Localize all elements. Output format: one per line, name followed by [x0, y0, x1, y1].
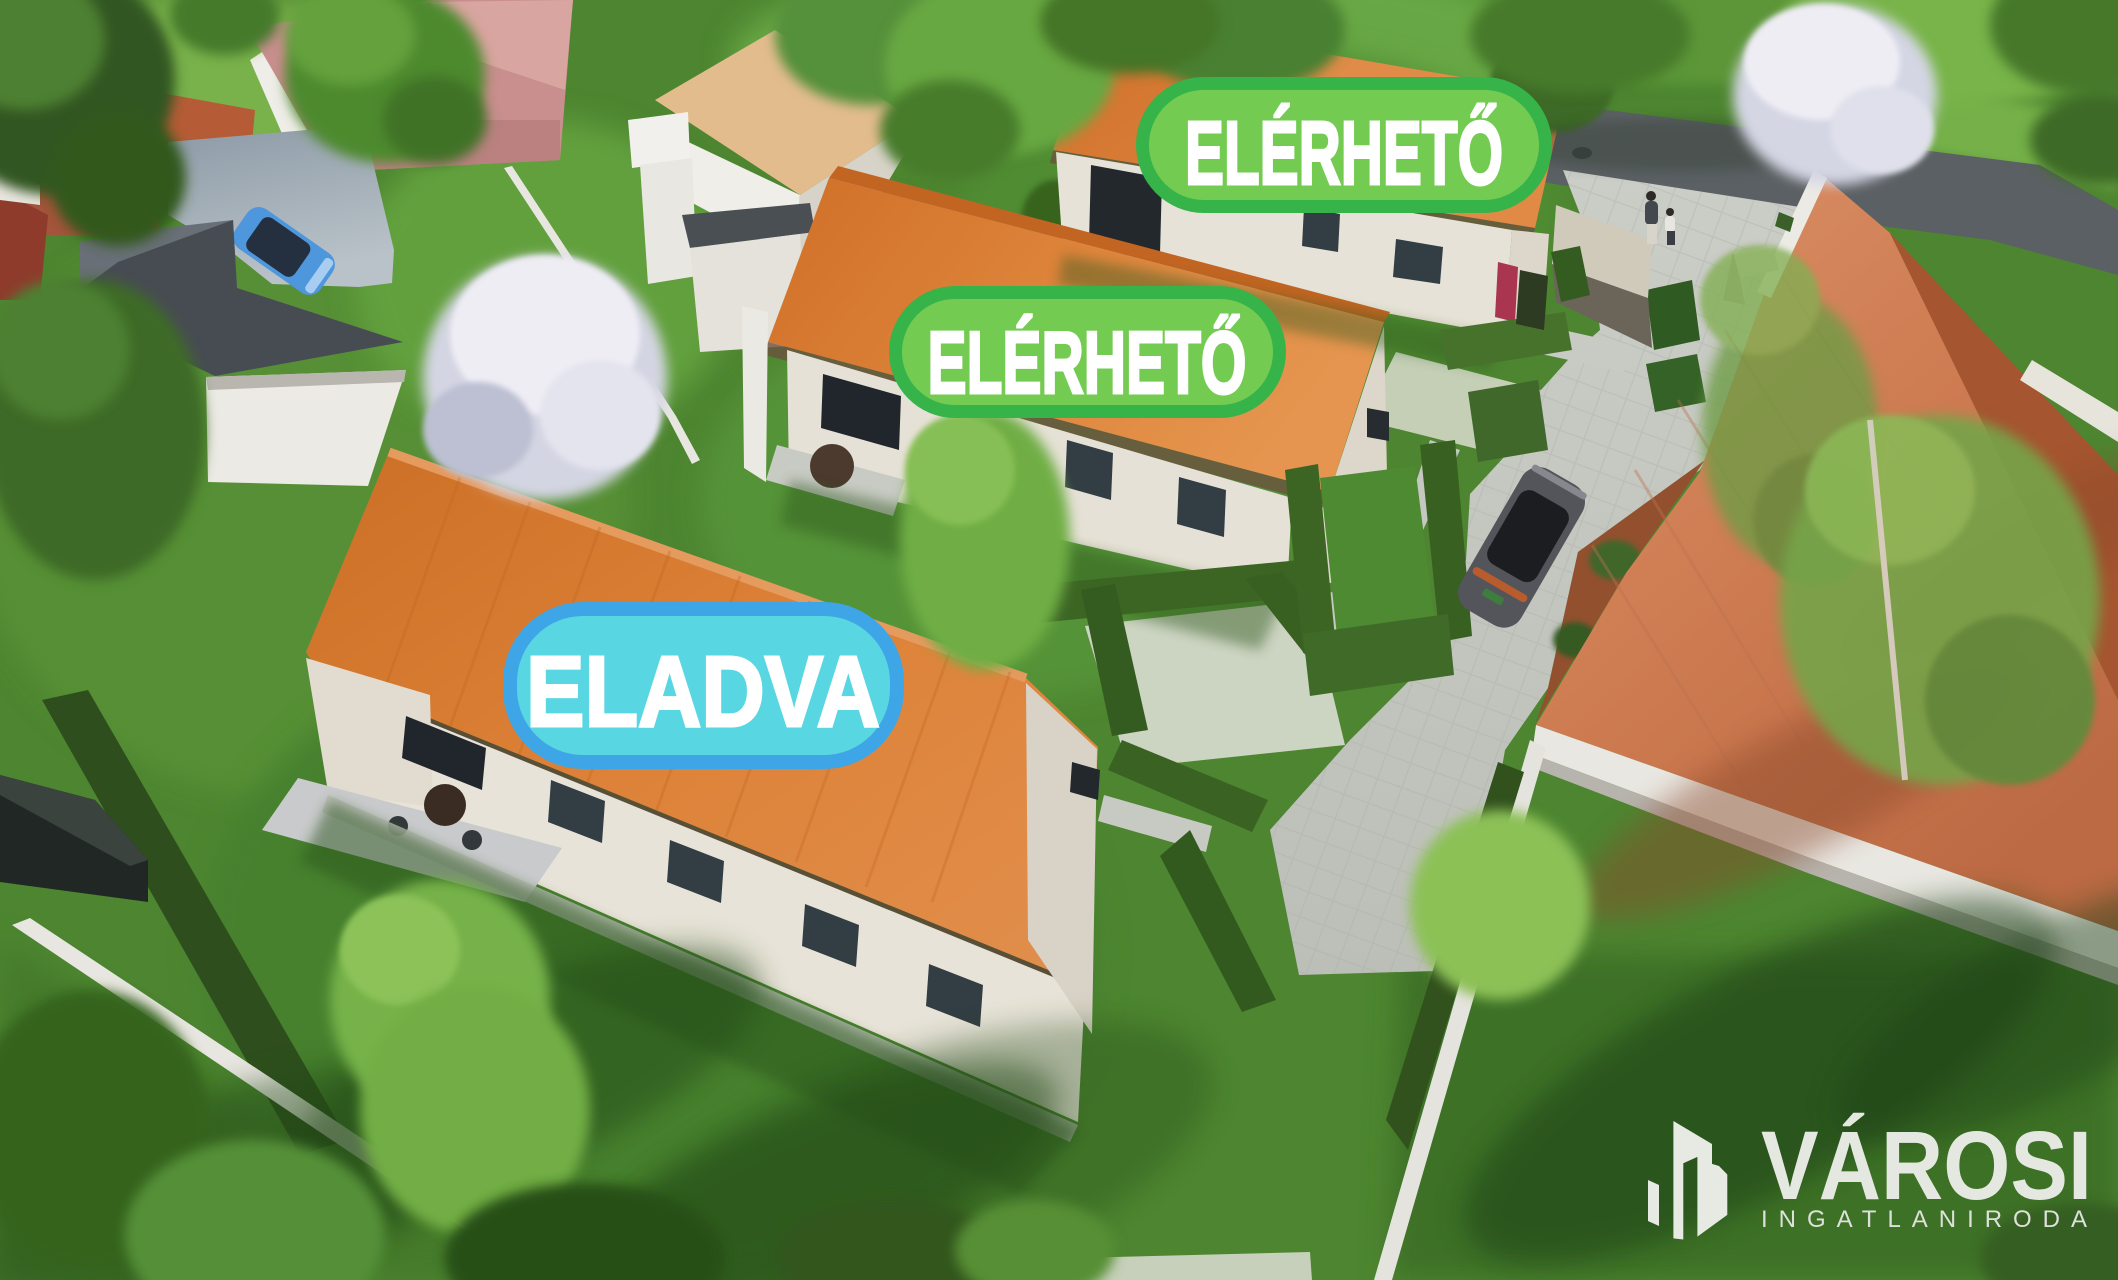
svg-text:VÁROSI: VÁROSI: [1761, 1111, 2092, 1220]
svg-text:ELÉRHETŐ: ELÉRHETŐ: [1185, 103, 1503, 204]
svg-text:ELADVA: ELADVA: [526, 636, 880, 748]
svg-text:ELÉRHETŐ: ELÉRHETŐ: [928, 313, 1247, 412]
